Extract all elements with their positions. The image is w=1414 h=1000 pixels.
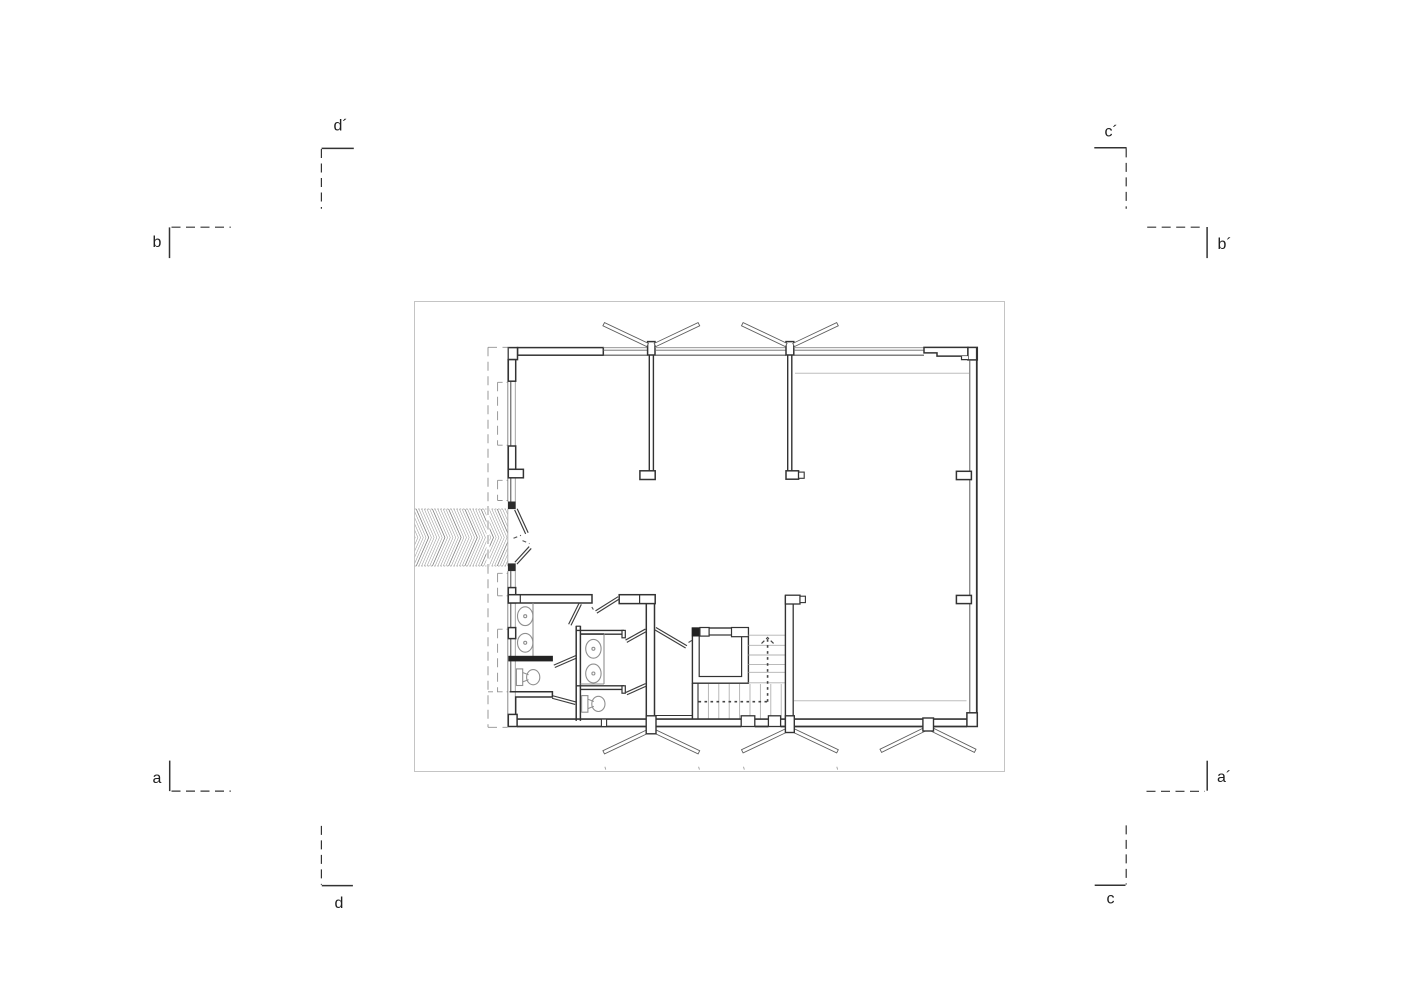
svg-text:d: d <box>335 895 344 912</box>
svg-text:d´: d´ <box>334 118 348 135</box>
svg-text:c´: c´ <box>1105 124 1118 141</box>
svg-text:a: a <box>153 770 162 787</box>
svg-text:c: c <box>1107 891 1115 908</box>
svg-text:a´: a´ <box>1217 769 1231 786</box>
svg-text:b: b <box>153 234 162 251</box>
svg-text:b´: b´ <box>1218 236 1232 253</box>
